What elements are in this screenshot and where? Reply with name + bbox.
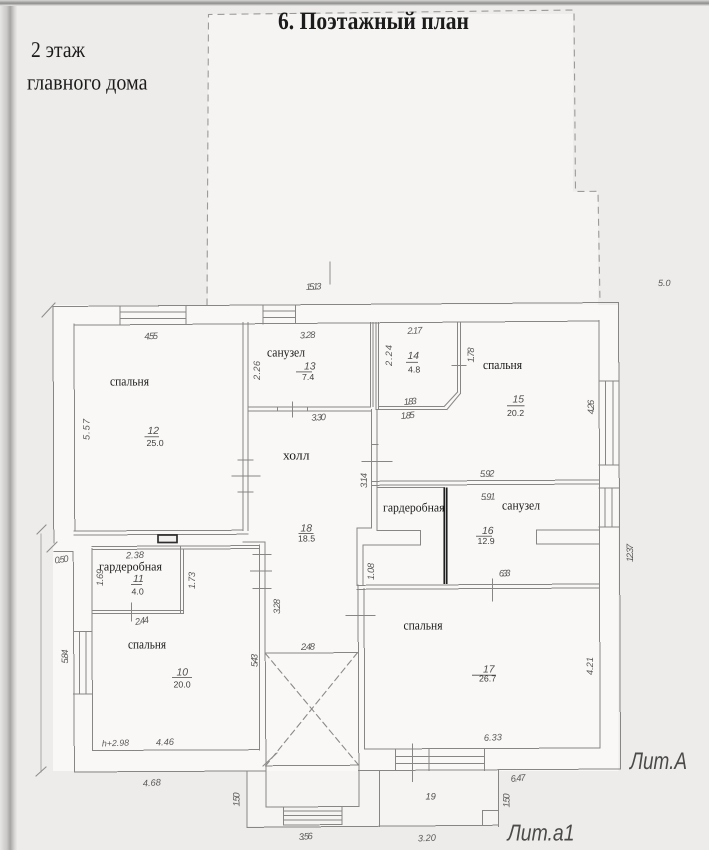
svg-text:4.55: 4.55: [144, 331, 159, 342]
svg-text:25.0: 25.0: [147, 438, 164, 448]
svg-text:3.14: 3.14: [359, 473, 369, 488]
svg-text:12.37: 12.37: [625, 543, 635, 562]
svg-text:6.33: 6.33: [484, 732, 503, 743]
svg-text:главного дома: главного дома: [27, 70, 148, 95]
svg-text:4.46: 4.46: [156, 737, 175, 748]
svg-text:3.30: 3.30: [311, 412, 327, 423]
svg-text:6. Поэтажный план: 6. Поэтажный план: [278, 8, 469, 35]
svg-text:спальня: спальня: [483, 357, 522, 372]
svg-text:5.57: 5.57: [82, 418, 92, 440]
svg-text:13: 13: [304, 362, 316, 373]
svg-text:2.38: 2.38: [125, 550, 145, 561]
svg-text:2.26: 2.26: [252, 360, 262, 381]
svg-text:3.56: 3.56: [298, 831, 313, 842]
svg-text:6.47: 6.47: [510, 772, 527, 784]
svg-text:4.0: 4.0: [132, 587, 144, 597]
svg-text:6.33: 6.33: [499, 568, 512, 578]
svg-text:11: 11: [133, 574, 144, 585]
svg-text:4.8: 4.8: [408, 364, 420, 374]
svg-text:5.43: 5.43: [250, 653, 260, 667]
svg-text:1.08: 1.08: [366, 562, 376, 580]
svg-text:2.17: 2.17: [406, 325, 423, 336]
svg-text:3.28: 3.28: [300, 330, 317, 341]
svg-text:14: 14: [408, 351, 420, 362]
svg-text:2.24: 2.24: [384, 345, 394, 367]
svg-text:4.26: 4.26: [586, 399, 596, 414]
svg-text:4.21: 4.21: [585, 657, 595, 675]
svg-text:12.9: 12.9: [478, 536, 495, 546]
svg-text:0.50: 0.50: [54, 554, 70, 566]
svg-text:h+2.98: h+2.98: [102, 738, 130, 749]
svg-text:спальня: спальня: [110, 374, 149, 389]
svg-text:1.85: 1.85: [400, 410, 416, 421]
svg-text:15: 15: [513, 395, 525, 406]
svg-text:7.4: 7.4: [302, 372, 314, 382]
svg-text:спальня: спальня: [404, 618, 443, 633]
svg-text:1.83: 1.83: [403, 396, 418, 407]
svg-text:2 этаж: 2 этаж: [31, 37, 85, 62]
svg-text:4.68: 4.68: [142, 777, 162, 788]
svg-text:1.73: 1.73: [187, 571, 197, 589]
svg-text:26.7: 26.7: [479, 673, 496, 683]
svg-text:20.0: 20.0: [174, 680, 191, 690]
svg-text:12: 12: [148, 426, 160, 437]
svg-text:Лит.а1: Лит.а1: [506, 820, 575, 846]
svg-text:1.69: 1.69: [95, 569, 105, 586]
svg-text:3.28: 3.28: [272, 598, 282, 614]
svg-text:Лит.А: Лит.А: [628, 748, 687, 775]
svg-text:гардеробная: гардеробная: [99, 560, 162, 574]
svg-text:санузел: санузел: [502, 498, 540, 513]
svg-text:5.0: 5.0: [658, 278, 671, 288]
svg-text:18.5: 18.5: [298, 534, 315, 544]
svg-text:5.84: 5.84: [60, 650, 70, 664]
svg-text:гардеробная: гардеробная: [383, 501, 445, 515]
svg-text:5.91: 5.91: [481, 491, 496, 501]
svg-text:1.50: 1.50: [502, 793, 512, 808]
svg-text:5.92: 5.92: [480, 468, 496, 479]
svg-text:холл: холл: [283, 448, 310, 463]
svg-text:санузел: санузел: [267, 345, 305, 360]
svg-text:15.13: 15.13: [306, 281, 323, 292]
svg-text:2.48: 2.48: [300, 641, 316, 652]
svg-text:1.50: 1.50: [232, 792, 242, 807]
svg-text:спальня: спальня: [128, 637, 166, 652]
svg-text:3.20: 3.20: [418, 833, 437, 844]
svg-text:1.78: 1.78: [466, 347, 476, 363]
svg-text:20.2: 20.2: [507, 408, 524, 418]
svg-text:19: 19: [426, 792, 436, 802]
svg-text:10: 10: [177, 668, 189, 679]
